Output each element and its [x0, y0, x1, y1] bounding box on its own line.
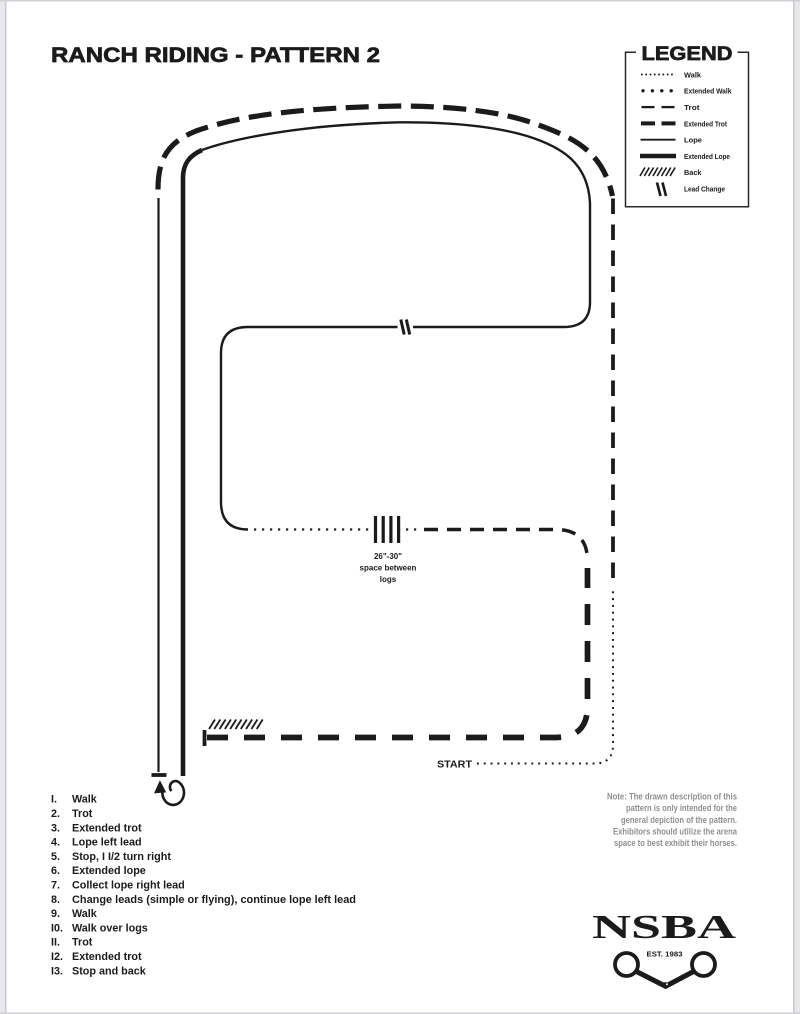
svg-text:8.: 8.	[51, 894, 60, 906]
svg-text:I0.: I0.	[51, 922, 63, 934]
svg-text:Lope: Lope	[684, 136, 702, 145]
svg-text:Note: The drawn description of: Note: The drawn description of this	[607, 792, 737, 803]
svg-text:5.: 5.	[51, 851, 60, 863]
svg-text:Stop and back: Stop and back	[72, 965, 147, 977]
svg-text:Exhibitors should utilize the: Exhibitors should utilize the arena	[613, 826, 738, 837]
svg-text:II.: II.	[51, 937, 60, 949]
svg-text:Collect lope right lead: Collect lope right lead	[72, 880, 185, 892]
svg-text:pattern is only intended for t: pattern is only intended for the	[626, 803, 737, 814]
svg-text:3.: 3.	[51, 822, 60, 834]
svg-text:Extended Lope: Extended Lope	[684, 152, 730, 161]
svg-text:LEGEND: LEGEND	[642, 43, 733, 65]
svg-text:Walk over logs: Walk over logs	[72, 922, 148, 934]
svg-text:6.: 6.	[51, 865, 60, 877]
svg-text:Walk: Walk	[72, 908, 98, 920]
svg-text:NSBA: NSBA	[592, 909, 737, 946]
svg-text:2.: 2.	[51, 808, 60, 820]
svg-text:Walk: Walk	[72, 794, 98, 806]
svg-text:I2.: I2.	[51, 951, 63, 963]
svg-text:26"-30": 26"-30"	[374, 552, 402, 561]
svg-text:logs: logs	[380, 575, 397, 584]
svg-text:general depiction of the patte: general depiction of the pattern.	[621, 815, 737, 826]
svg-text:Lead Change: Lead Change	[684, 185, 725, 194]
svg-text:Stop, I I/2 turn right: Stop, I I/2 turn right	[72, 851, 171, 863]
svg-text:4.: 4.	[51, 837, 60, 849]
svg-text:EST. 1983: EST. 1983	[647, 950, 683, 959]
svg-text:I3.: I3.	[51, 965, 63, 977]
svg-text:Extended trot: Extended trot	[72, 822, 142, 834]
svg-text:7.: 7.	[51, 880, 60, 892]
svg-text:Walk: Walk	[684, 70, 702, 79]
svg-text:space between: space between	[360, 564, 417, 573]
svg-text:Lope left lead: Lope left lead	[72, 837, 142, 849]
svg-text:Extended lope: Extended lope	[72, 865, 146, 877]
svg-text:Trot: Trot	[684, 103, 700, 112]
svg-text:space to best exhibit their ho: space to best exhibit their horses.	[614, 838, 737, 849]
svg-text:Extended Trot: Extended Trot	[684, 119, 727, 128]
svg-text:Trot: Trot	[72, 808, 93, 820]
svg-text:Extended trot: Extended trot	[72, 951, 142, 963]
svg-text:Trot: Trot	[72, 937, 93, 949]
svg-text:RANCH RIDING - PATTERN 2: RANCH RIDING - PATTERN 2	[51, 43, 380, 67]
svg-text:Change leads (simple or flying: Change leads (simple or flying), continu…	[72, 894, 356, 906]
svg-text:I.: I.	[51, 794, 57, 806]
svg-text:Extended Walk: Extended Walk	[684, 87, 732, 96]
svg-text:Back: Back	[684, 168, 702, 177]
svg-text:9.: 9.	[51, 908, 60, 920]
svg-text:START: START	[437, 759, 473, 771]
